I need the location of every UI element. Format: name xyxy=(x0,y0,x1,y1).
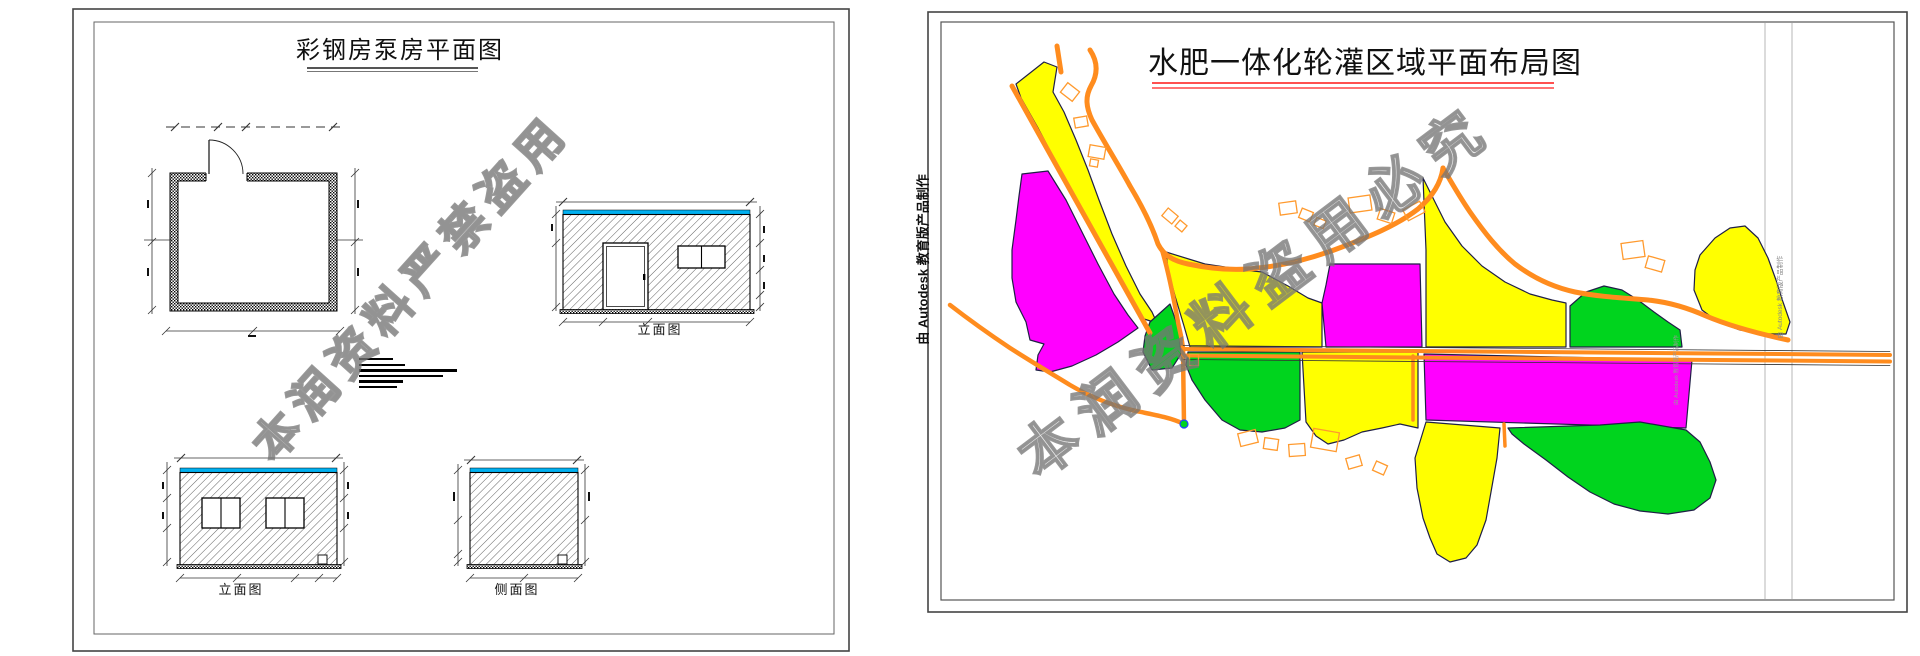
notes-block xyxy=(359,358,469,391)
field-yellow-tall-north xyxy=(1423,178,1566,347)
ground-line xyxy=(560,310,754,314)
roof-stripe xyxy=(180,468,337,473)
autodesk-education-stamp-small: 由 Autodesk 教育版产品制作 xyxy=(1672,330,1680,410)
floor-plan xyxy=(144,123,363,337)
dashed-line-ticks xyxy=(171,123,337,131)
autodesk-education-stamp: 由 Autodesk 教育版产品制作 xyxy=(913,171,932,349)
door-swing xyxy=(209,140,243,174)
elevation-rear-label: 立面图 xyxy=(206,579,276,598)
right-drawing-title: 水肥一体化轮灌区域平面布局图 xyxy=(1148,38,1558,82)
cad-drawing-canvas xyxy=(0,0,1920,656)
road-stub-south xyxy=(1183,352,1184,424)
elevation-door xyxy=(603,243,648,310)
notes-line xyxy=(359,380,403,382)
roof-stripe xyxy=(563,210,750,215)
elevation-main-label: 立面图 xyxy=(625,319,695,338)
notes-line xyxy=(359,369,457,371)
field-magenta-south xyxy=(1424,354,1692,428)
irrigation-fields xyxy=(1012,62,1790,562)
elevation-rear xyxy=(162,454,349,582)
left-drawing-title: 彩钢房泵房平面图 xyxy=(255,30,545,65)
field-magenta-north xyxy=(1322,264,1422,347)
page: 彩钢房泵房平面图 立面图 立面图 侧面图 水肥一体化轮灌区域平面布局图 本润资料… xyxy=(0,0,1920,656)
ground-line xyxy=(467,565,582,569)
door-handle xyxy=(643,274,645,280)
right-title-underline xyxy=(1152,82,1554,84)
road-stub-east xyxy=(1504,424,1505,446)
side-view xyxy=(453,456,590,582)
left-title-underline xyxy=(307,71,478,72)
field-green-south-east xyxy=(1508,422,1716,514)
elevation-main xyxy=(551,198,765,326)
field-green-south-west xyxy=(1186,352,1300,432)
side-view-label: 侧面图 xyxy=(482,579,552,598)
vent-notch xyxy=(558,555,567,564)
door-opening xyxy=(206,171,247,183)
field-yellow-south-lobe xyxy=(1415,422,1500,562)
autodesk-education-stamp-small: 由 Autodesk 教育版产品制作 xyxy=(1774,237,1784,357)
right-title-underline xyxy=(1152,87,1554,89)
notes-line xyxy=(359,358,393,360)
vent-notch xyxy=(318,555,327,564)
ground-line xyxy=(177,565,341,569)
pump-station-dot xyxy=(1180,420,1188,428)
road-strip-stub xyxy=(1057,46,1061,72)
left-title-underline xyxy=(307,67,478,69)
roof-stripe xyxy=(470,468,578,473)
notes-line xyxy=(359,364,405,366)
notes-line xyxy=(359,375,443,377)
field-yellow-south xyxy=(1302,352,1418,444)
notes-line xyxy=(359,386,397,388)
